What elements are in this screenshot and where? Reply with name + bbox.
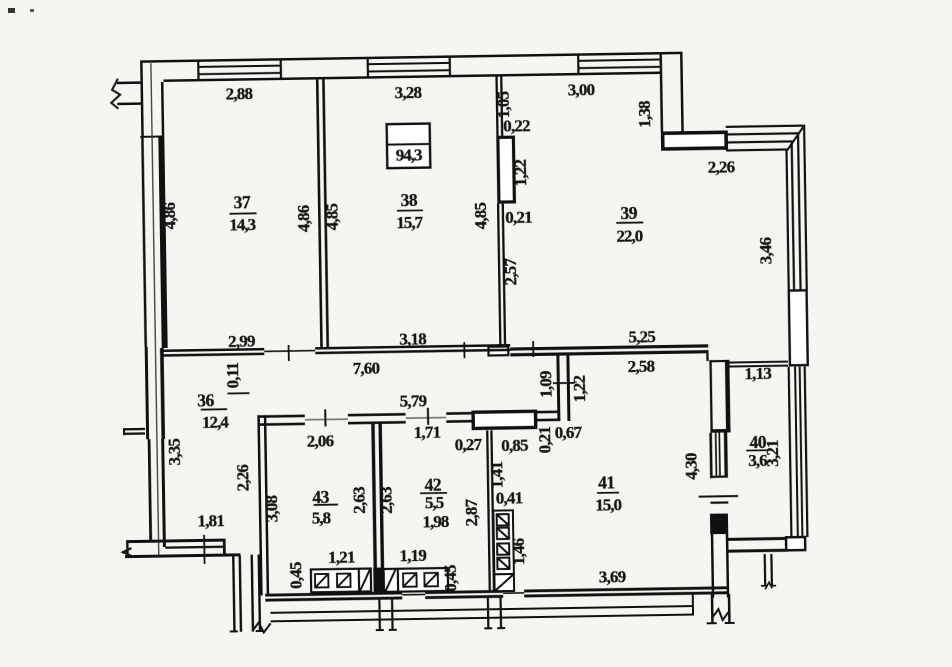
svg-text:2,26: 2,26	[708, 157, 735, 176]
svg-text:3,08: 3,08	[262, 495, 281, 522]
svg-text:42: 42	[424, 475, 441, 495]
svg-text:38: 38	[400, 190, 418, 210]
svg-text:1,09: 1,09	[536, 371, 555, 398]
svg-text:2,63: 2,63	[376, 487, 395, 514]
svg-text:0,45: 0,45	[441, 565, 460, 592]
svg-text:4,86: 4,86	[294, 205, 313, 232]
svg-text:5,8: 5,8	[312, 508, 331, 527]
svg-text:1,22: 1,22	[569, 375, 588, 402]
svg-text:12,4: 12,4	[202, 413, 230, 432]
svg-text:3,46: 3,46	[756, 237, 775, 264]
svg-text:1,21: 1,21	[328, 547, 355, 566]
svg-text:2,57: 2,57	[501, 257, 520, 285]
svg-text:1,05: 1,05	[494, 91, 513, 118]
svg-text:1,13: 1,13	[744, 364, 771, 383]
svg-text:0,21: 0,21	[505, 208, 532, 227]
svg-text:3,21: 3,21	[763, 440, 782, 467]
svg-text:1,22: 1,22	[511, 159, 530, 186]
svg-text:0,85: 0,85	[501, 435, 528, 454]
svg-text:4,30: 4,30	[681, 453, 700, 480]
svg-text:1,46: 1,46	[509, 538, 528, 565]
svg-text:3,35: 3,35	[165, 438, 184, 465]
svg-text:1,98: 1,98	[422, 512, 449, 531]
svg-text:0,27: 0,27	[455, 435, 483, 454]
svg-text:1,41: 1,41	[487, 461, 506, 488]
svg-text:0,41: 0,41	[496, 488, 523, 507]
svg-text:5,25: 5,25	[628, 327, 655, 346]
svg-text:3,00: 3,00	[568, 80, 595, 99]
svg-text:3,69: 3,69	[599, 567, 626, 586]
svg-text:2,87: 2,87	[462, 498, 481, 526]
svg-text:2,06: 2,06	[307, 431, 334, 450]
svg-text:0,11: 0,11	[223, 362, 242, 388]
svg-text:0,67: 0,67	[555, 423, 583, 442]
svg-text:15,0: 15,0	[595, 495, 622, 514]
svg-text:1,81: 1,81	[197, 511, 224, 530]
svg-text:0,21: 0,21	[535, 426, 554, 453]
svg-text:2,63: 2,63	[349, 487, 368, 514]
svg-text:2,26: 2,26	[233, 464, 252, 491]
svg-text:0,45: 0,45	[286, 562, 305, 589]
svg-text:0,22: 0,22	[503, 116, 530, 135]
svg-text:14,3: 14,3	[229, 215, 256, 234]
svg-text:15,7: 15,7	[396, 213, 424, 232]
svg-text:94,3: 94,3	[396, 145, 423, 164]
svg-text:41: 41	[598, 472, 615, 492]
svg-text:5,5: 5,5	[425, 493, 444, 512]
svg-text:37: 37	[233, 192, 251, 212]
svg-text:7,60: 7,60	[353, 359, 380, 378]
svg-text:1,38: 1,38	[635, 101, 654, 128]
svg-text:4,85: 4,85	[471, 202, 490, 229]
svg-text:39: 39	[620, 203, 638, 223]
svg-text:4,86: 4,86	[160, 202, 179, 229]
svg-text:5,79: 5,79	[400, 391, 427, 410]
svg-text:1,71: 1,71	[414, 423, 441, 442]
svg-text:22,0: 22,0	[616, 226, 643, 245]
svg-text:2,99: 2,99	[228, 332, 255, 351]
svg-text:3,28: 3,28	[394, 83, 421, 102]
svg-text:3,18: 3,18	[399, 329, 426, 348]
svg-text:36: 36	[197, 390, 215, 410]
svg-text:2,88: 2,88	[225, 84, 252, 103]
svg-text:4,85: 4,85	[323, 203, 342, 230]
svg-text:1,19: 1,19	[399, 546, 426, 565]
svg-text:2,58: 2,58	[628, 356, 655, 375]
